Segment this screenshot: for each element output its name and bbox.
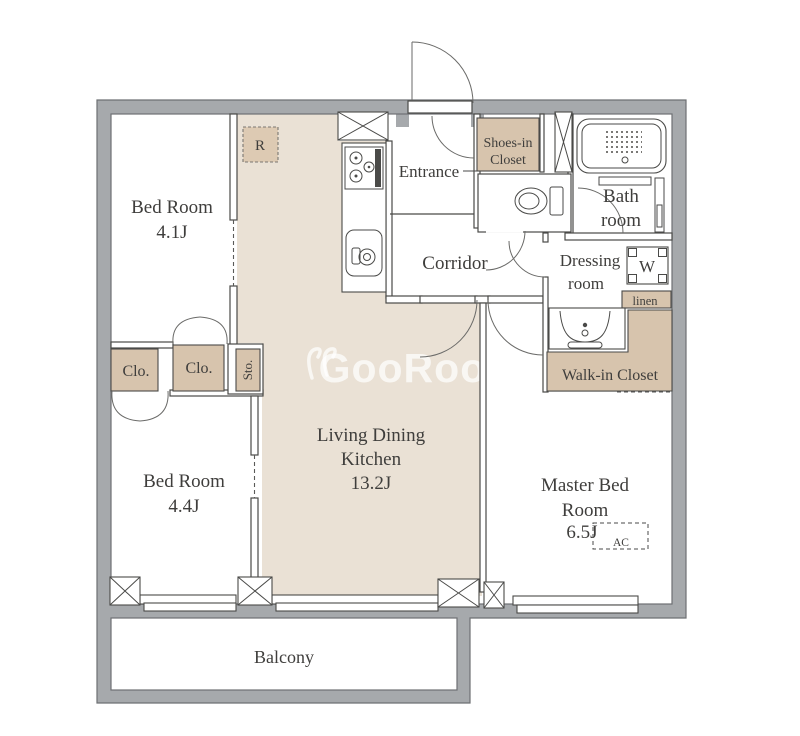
shaft-x-icon bbox=[555, 112, 572, 172]
dressing-door-arc bbox=[509, 241, 545, 277]
washbasin-icon bbox=[549, 308, 625, 349]
entrance-door bbox=[408, 42, 473, 113]
floor-plan: GooRooM bbox=[0, 0, 800, 736]
label-ldk-size: 13.2J bbox=[351, 473, 392, 494]
label-walk-in-closet: Walk-in Closet bbox=[562, 367, 659, 384]
pillar-x-icon bbox=[110, 577, 140, 605]
label-ldk-1: Living Dining bbox=[317, 425, 426, 446]
label-dressing-1: Dressing bbox=[560, 251, 621, 270]
master-window bbox=[513, 596, 638, 613]
label-washer: W bbox=[639, 257, 656, 276]
toilet-door-arc bbox=[486, 231, 525, 270]
label-refrigerator: R bbox=[255, 138, 265, 154]
label-master-1: Master Bed bbox=[541, 475, 630, 496]
label-balcony: Balcony bbox=[254, 647, 314, 667]
label-dressing-2: room bbox=[568, 274, 604, 293]
kitchen-counter bbox=[342, 143, 386, 292]
label-master-size: 6.5J bbox=[566, 522, 597, 543]
pillar-x-icon bbox=[238, 577, 272, 605]
closet2-double-door-arc bbox=[173, 317, 227, 344]
label-corridor: Corridor bbox=[422, 253, 488, 274]
label-bath-1: Bath bbox=[603, 186, 639, 207]
label-master-2: Room bbox=[562, 500, 609, 521]
label-bedroom1-size: 4.1J bbox=[156, 222, 187, 243]
label-ac: AC bbox=[613, 537, 629, 549]
label-bedroom2-size: 4.4J bbox=[168, 496, 199, 517]
closet1-double-door-arc bbox=[112, 391, 168, 421]
label-closet1: Clo. bbox=[122, 363, 149, 380]
label-storage: Sto. bbox=[240, 360, 255, 381]
label-entrance: Entrance bbox=[399, 162, 459, 181]
entrance-inner-door-arc bbox=[432, 116, 474, 158]
toilet-room bbox=[478, 174, 571, 233]
entrance-door-arc bbox=[412, 42, 473, 103]
label-linen: linen bbox=[633, 294, 659, 308]
label-shoes-closet-2: Closet bbox=[490, 153, 526, 168]
label-shoes-closet-1: Shoes-in bbox=[484, 136, 533, 151]
ldk-window bbox=[272, 595, 438, 611]
label-ldk-2: Kitchen bbox=[341, 449, 402, 470]
label-bedroom1-name: Bed Room bbox=[131, 197, 213, 218]
bedroom2-window bbox=[140, 595, 236, 611]
floor-plan-drawing: GooRooM bbox=[0, 0, 800, 736]
watermark: GooRooM bbox=[309, 345, 522, 391]
bathtub-icon bbox=[577, 119, 666, 173]
windows bbox=[140, 595, 638, 613]
watermark-text: GooRooM bbox=[319, 345, 522, 391]
pillar-x-icon bbox=[338, 112, 388, 140]
label-bath-2: room bbox=[601, 210, 641, 231]
pillar-x-icon bbox=[484, 582, 504, 608]
bath-step bbox=[599, 177, 651, 185]
label-closet2: Clo. bbox=[185, 360, 212, 377]
label-bedroom2-name: Bed Room bbox=[143, 471, 225, 492]
pillar-x-icon bbox=[438, 579, 479, 607]
